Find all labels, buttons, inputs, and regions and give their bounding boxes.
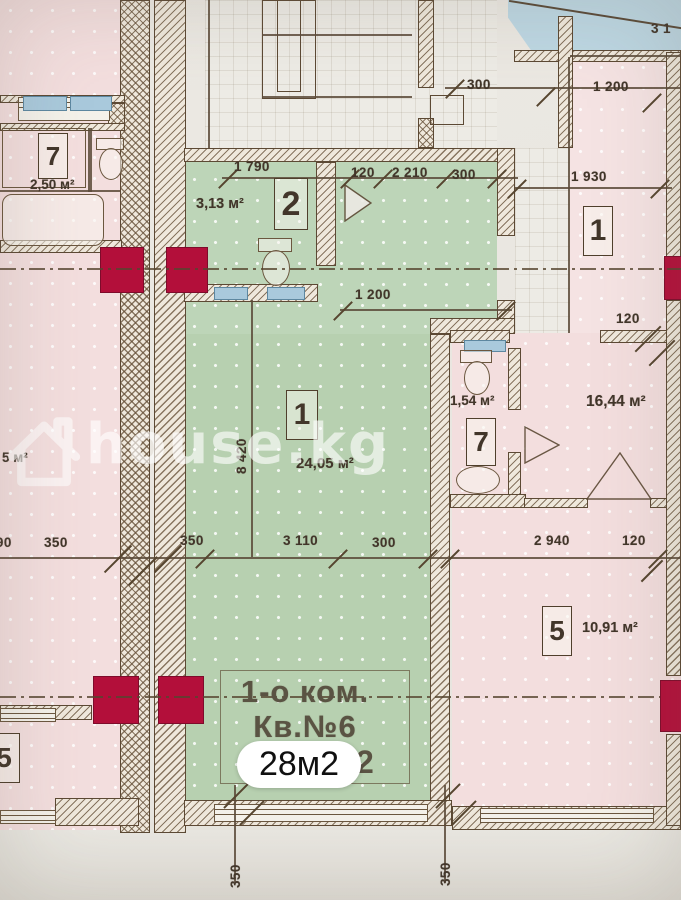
dimension-tick bbox=[536, 87, 556, 107]
lintel-tag bbox=[267, 287, 305, 300]
shaft-outline bbox=[430, 95, 464, 125]
dimension-label: 300 bbox=[467, 77, 491, 92]
wall bbox=[666, 300, 681, 676]
room-area-left-7: 2,50 м² bbox=[30, 177, 75, 192]
wall bbox=[666, 734, 681, 826]
shaft-outline bbox=[277, 0, 301, 92]
dimension-label: 1 200 bbox=[593, 79, 629, 94]
column-marker bbox=[158, 676, 204, 724]
room-area-left-partial: 5 м² bbox=[2, 450, 28, 465]
lintel-tag bbox=[70, 96, 112, 111]
dimension-label: 300 bbox=[372, 535, 396, 550]
dimension-label: 120 bbox=[351, 165, 375, 180]
room-number-box-left-5: 5 bbox=[0, 733, 20, 783]
door-leaf-green-hall bbox=[344, 184, 372, 222]
dimension-line bbox=[251, 300, 253, 557]
window bbox=[480, 808, 654, 823]
wall bbox=[430, 334, 450, 820]
room-number-box-right-5: 5 bbox=[542, 606, 572, 656]
room-area-right-7: 1,54 м² bbox=[450, 393, 495, 408]
apartment-label-line1: 1-о ком. bbox=[212, 674, 398, 709]
room-number-box-right-7: 7 bbox=[466, 418, 496, 466]
wall bbox=[666, 52, 681, 262]
dimension-label: 1 790 bbox=[234, 159, 270, 174]
toilet-right-bowl bbox=[464, 361, 490, 395]
dimension-line bbox=[568, 57, 570, 333]
dimension-label: 120 bbox=[622, 533, 646, 548]
bathtub bbox=[2, 194, 104, 246]
wall bbox=[418, 0, 434, 88]
room-number-box-green-1: 1 bbox=[286, 390, 318, 440]
wall bbox=[558, 16, 573, 148]
room-number-box-left-7: 7 bbox=[38, 133, 68, 179]
door-leaf-bathroom-right bbox=[524, 426, 560, 464]
toilet-left-bowl bbox=[99, 148, 123, 180]
column-marker bbox=[100, 247, 144, 293]
dimension-label: 3 110 bbox=[283, 533, 318, 548]
dimension-label: 1 930 bbox=[571, 169, 607, 184]
apartment-label-line2: Кв.№6 bbox=[212, 709, 398, 744]
sink-right bbox=[456, 466, 500, 494]
apartment-label: 1-о ком. Кв.№6 bbox=[212, 674, 398, 744]
floor-plan-photo: 1-о ком. Кв.№6 2 28м2 house.kg 1 7901202… bbox=[0, 0, 681, 900]
dimension-label: 350 bbox=[44, 535, 68, 550]
window bbox=[0, 810, 56, 824]
door-leaf-room16 bbox=[586, 452, 652, 500]
dimension-line bbox=[208, 0, 210, 148]
dimension-label: 3 1 bbox=[651, 21, 671, 36]
axis-line bbox=[0, 268, 681, 270]
stairwell bbox=[205, 0, 497, 148]
wall bbox=[55, 798, 139, 826]
wall bbox=[508, 348, 521, 410]
room-area-right-16: 16,44 м² bbox=[586, 393, 646, 411]
area-badge: 28м2 bbox=[237, 741, 361, 788]
column-marker bbox=[166, 247, 208, 293]
dimension-label: 350 bbox=[438, 862, 453, 886]
window bbox=[0, 708, 56, 722]
dimension-line bbox=[515, 187, 672, 189]
column-marker bbox=[93, 676, 139, 724]
dimension-label: 8 420 bbox=[234, 438, 249, 474]
dimension-line bbox=[570, 55, 681, 57]
dimension-label: 120 bbox=[616, 311, 640, 326]
room-area-right-5: 10,91 м² bbox=[582, 620, 638, 636]
lintel-tag bbox=[214, 287, 248, 300]
room-area-green-1: 24,05 м² bbox=[296, 455, 354, 472]
room-number-box-green-2: 2 bbox=[274, 178, 308, 230]
dimension-label: 300 bbox=[452, 167, 476, 182]
column-marker bbox=[660, 680, 681, 732]
lintel-tag bbox=[23, 96, 67, 111]
dimension-label: 350 bbox=[228, 864, 243, 888]
dimension-label: 490 bbox=[0, 535, 12, 550]
dimension-label: 2 210 bbox=[392, 165, 428, 180]
dimension-label: 1 200 bbox=[355, 287, 391, 302]
room-number-box-right-1: 1 bbox=[583, 206, 613, 256]
wall bbox=[508, 452, 521, 500]
dimension-line bbox=[88, 128, 92, 192]
dimension-label: 350 bbox=[180, 533, 204, 548]
wall bbox=[450, 494, 526, 508]
room-area-green-2: 3,13 м² bbox=[196, 196, 244, 212]
column-marker bbox=[664, 256, 681, 300]
dimension-label: 2 940 bbox=[534, 533, 570, 548]
wall bbox=[524, 498, 588, 508]
dimension-line bbox=[262, 96, 412, 98]
right-corridor bbox=[515, 148, 570, 333]
dimension-line bbox=[340, 309, 512, 311]
paper-bottom bbox=[0, 830, 681, 900]
dimension-line bbox=[262, 34, 412, 36]
